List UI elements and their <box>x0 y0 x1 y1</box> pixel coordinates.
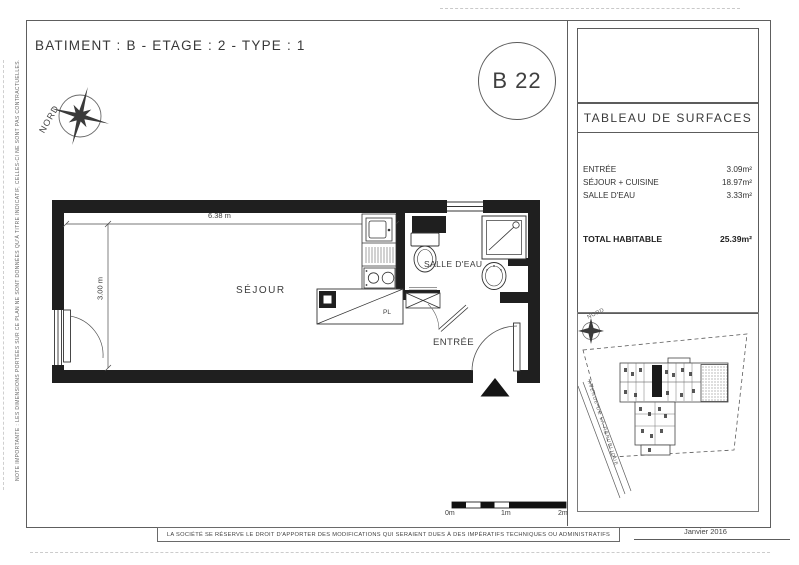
site-plan-box <box>577 312 759 512</box>
kitchen-unit-icon <box>362 214 396 290</box>
table-total-row: TOTAL HABITABLE 25.39m² <box>583 234 752 244</box>
empty-panel-box <box>577 28 759 104</box>
scale-tick: 2m <box>558 510 568 517</box>
apartment-walls <box>52 200 540 383</box>
surface-table-rows: ENTRÉE 3.09m² SÉJOUR + CUISINE 18.97m² S… <box>583 164 752 202</box>
washbasin-icon <box>482 263 506 290</box>
table-row: ENTRÉE 3.09m² <box>583 164 752 177</box>
unit-code: B 22 <box>492 68 541 94</box>
scale-tick: 1m <box>501 510 511 517</box>
compass-rose-icon <box>51 87 109 145</box>
room-label-sejour: SÉJOUR <box>236 285 286 296</box>
disclaimer-box: LA SOCIÉTÉ SE RÉSERVE LE DROIT D'APPORTE… <box>157 527 620 542</box>
room-label-placard: PL <box>383 309 391 316</box>
window-top-icon <box>447 202 483 211</box>
dimension-depth-label: 3.00 m <box>96 269 105 309</box>
closet-pl-icon <box>317 289 403 324</box>
table-row: SALLE D'EAU 3.33m² <box>583 190 752 203</box>
shower-icon <box>482 216 526 259</box>
surface-table-title: TABLEAU DE SURFACES <box>578 103 758 133</box>
room-label-entree: ENTRÉE <box>433 337 474 348</box>
unit-code-badge: B 22 <box>478 42 556 120</box>
scale-bar <box>452 502 566 508</box>
floor-plan-sheet: BATIMENT : B - ETAGE : 2 - TYPE : 1 B 22… <box>0 0 799 565</box>
scale-tick: 0m <box>445 510 455 517</box>
surface-table: TABLEAU DE SURFACES <box>577 102 759 314</box>
sheet-title: BATIMENT : B - ETAGE : 2 - TYPE : 1 <box>35 38 306 53</box>
room-label-salle-deau: SALLE D'EAU <box>424 259 482 269</box>
date-label: Janvier 2016 <box>684 527 727 536</box>
dimension-width-label: 6.38 m <box>208 211 231 220</box>
french-door-icon <box>64 310 104 362</box>
entrance-marker-icon <box>481 378 510 397</box>
window-left-icon <box>55 310 62 365</box>
entrance-door-icon <box>472 323 520 371</box>
date-underline <box>634 539 790 540</box>
side-note: NOTE IMPORTANTE : LES DIMENSIONS PORTÉES… <box>15 81 21 481</box>
table-row: SÉJOUR + CUISINE 18.97m² <box>583 177 752 190</box>
